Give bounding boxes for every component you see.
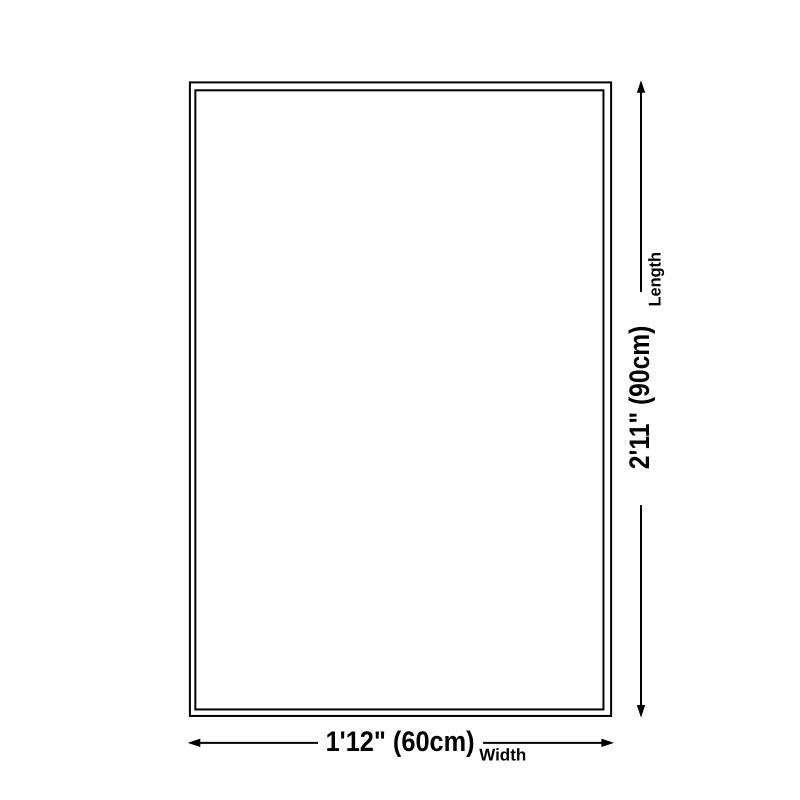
svg-text:2'11" (90cm): 2'11" (90cm) [623, 326, 655, 470]
svg-text:Length: Length [646, 252, 665, 307]
svg-text:Width: Width [479, 745, 526, 764]
svg-text:1'12" (60cm): 1'12" (60cm) [326, 725, 475, 757]
